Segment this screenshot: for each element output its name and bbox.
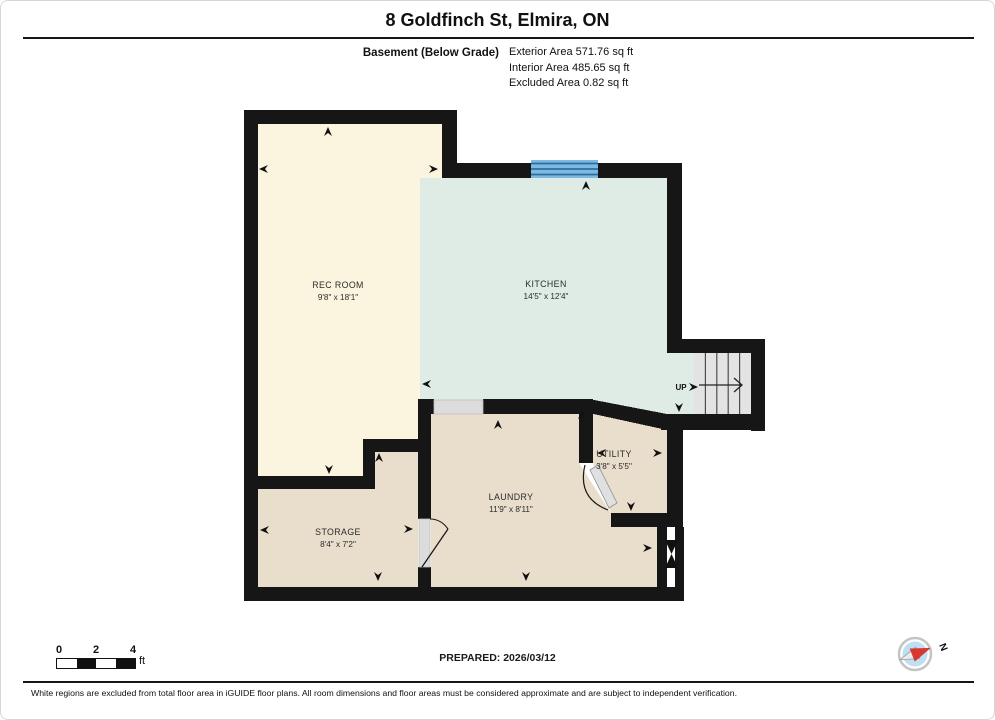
- room-label: LAUNDRY: [489, 492, 534, 502]
- room-dims: 8'4" x 7'2": [320, 540, 356, 549]
- footer-divider: [23, 681, 974, 683]
- room-dims: 3'8" x 5'5": [596, 462, 632, 471]
- wall: [667, 414, 683, 527]
- wall: [244, 110, 258, 601]
- wall: [418, 399, 431, 519]
- wall: [657, 527, 667, 587]
- wall: [418, 567, 431, 587]
- wall: [251, 476, 375, 489]
- room-dims: 14'5" x 12'4": [524, 292, 569, 301]
- wall: [244, 587, 684, 601]
- compass-icon: N: [881, 626, 971, 682]
- window-icon: [531, 160, 598, 178]
- wall: [418, 399, 434, 414]
- up-label: UP: [675, 383, 687, 392]
- wall: [244, 110, 457, 124]
- wall: [667, 163, 682, 343]
- floorplan-drawing: UP REC ROOM 9'8" x 18'1: [1, 1, 995, 720]
- wall: [483, 399, 593, 414]
- wall-opening: [419, 519, 430, 567]
- north-label: N: [936, 642, 949, 653]
- room-label: KITCHEN: [525, 279, 566, 289]
- room-dims: 11'9" x 8'11": [489, 505, 533, 514]
- room-label: STORAGE: [315, 527, 361, 537]
- wall-opening: [434, 400, 483, 414]
- wall: [667, 339, 765, 353]
- floorplan-page: 8 Goldfinch St, Elmira, ON Basement (Bel…: [0, 0, 995, 720]
- room-label: REC ROOM: [312, 280, 364, 290]
- room-label: UTILITY: [596, 449, 632, 459]
- wall: [611, 513, 683, 527]
- prepared-date: PREPARED: 2026/03/12: [1, 652, 994, 664]
- room-dims: 9'8" x 18'1": [318, 293, 358, 302]
- stairs-floor: [694, 353, 751, 414]
- disclaimer-text: White regions are excluded from total fl…: [31, 688, 971, 698]
